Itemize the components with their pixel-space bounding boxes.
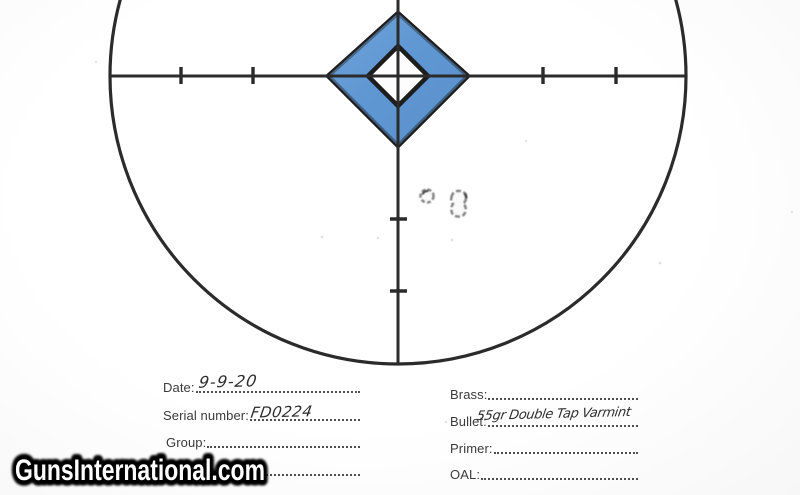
field-brass: Brass:: [450, 385, 638, 402]
brass-dotted-line: [488, 398, 638, 400]
primer-dotted-line: [494, 452, 638, 454]
serial-number-label: Serial number:: [163, 408, 249, 423]
bullet-dotted-line: [488, 425, 638, 427]
primer-label: Primer:: [450, 441, 493, 456]
handwritten-date: 9-9-20: [197, 371, 258, 392]
field-date: Date:: [163, 378, 360, 395]
watermark-text: GunsInternational.com: [15, 454, 265, 487]
field-primer: Primer:: [450, 439, 638, 456]
oal-label: OAL:: [450, 467, 480, 482]
date-label: Date:: [163, 380, 195, 395]
bullet-holes-group: [421, 190, 467, 217]
paper-speckles: [95, 61, 793, 424]
handwritten-serial: FD0224: [250, 402, 314, 422]
target-photo: Date: Serial number: Group: Powder: Bras…: [0, 0, 800, 495]
target-graphic: [0, 0, 800, 432]
oal-dotted-line: [481, 478, 638, 480]
field-oal: OAL:: [450, 465, 638, 482]
crosshair-group: [110, 0, 686, 364]
date-dotted-line: [196, 391, 360, 393]
watermark: GunsInternational.com GunsInternational.…: [2, 443, 278, 493]
bullet-hole-2-tear: [465, 194, 467, 199]
brass-label: Brass:: [450, 387, 487, 402]
